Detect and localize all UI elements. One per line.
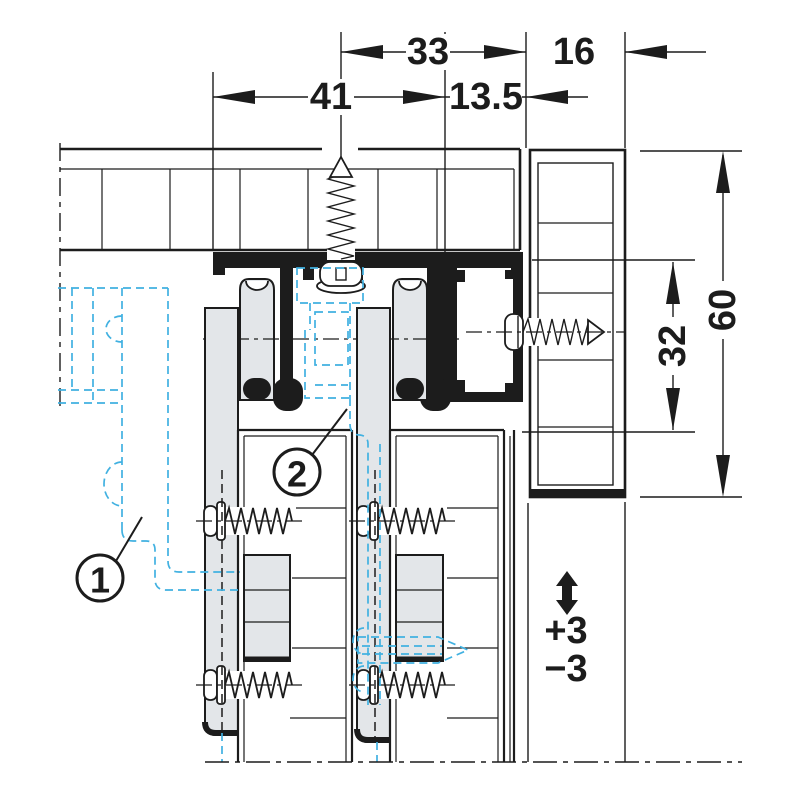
dimension-33: 33 — [341, 31, 526, 73]
dim-label-60: 60 — [702, 289, 744, 331]
adjust-plus-label: +3 — [544, 610, 587, 652]
callout-2-label: 2 — [287, 454, 307, 495]
dimension-60: 60 — [702, 151, 744, 497]
sliding-door-track-section-drawing: 41 33 13.5 16 — [0, 0, 800, 800]
dim-label-13-5: 13.5 — [449, 76, 523, 118]
height-adjustment: +3 −3 — [544, 571, 587, 690]
dimension-16: 16 — [552, 31, 706, 73]
track-fixing-screw — [317, 157, 365, 293]
technical-drawing-page: 41 33 13.5 16 — [0, 0, 800, 800]
dimension-13-5: 13.5 — [445, 76, 588, 118]
dim-label-32: 32 — [652, 325, 694, 367]
dim-label-33: 33 — [407, 31, 449, 73]
adjustment-block-right — [396, 555, 443, 661]
callout-part1: 1 — [77, 517, 142, 601]
dimension-41: 41 — [213, 76, 445, 118]
dimension-32: 32 — [652, 262, 694, 430]
callout-part2: 2 — [274, 409, 347, 495]
dim-label-41: 41 — [310, 76, 352, 118]
adjust-minus-label: −3 — [544, 648, 587, 690]
dim-label-16: 16 — [553, 31, 595, 73]
callout-1-label: 1 — [90, 560, 110, 601]
adjustment-block-left — [244, 555, 290, 661]
